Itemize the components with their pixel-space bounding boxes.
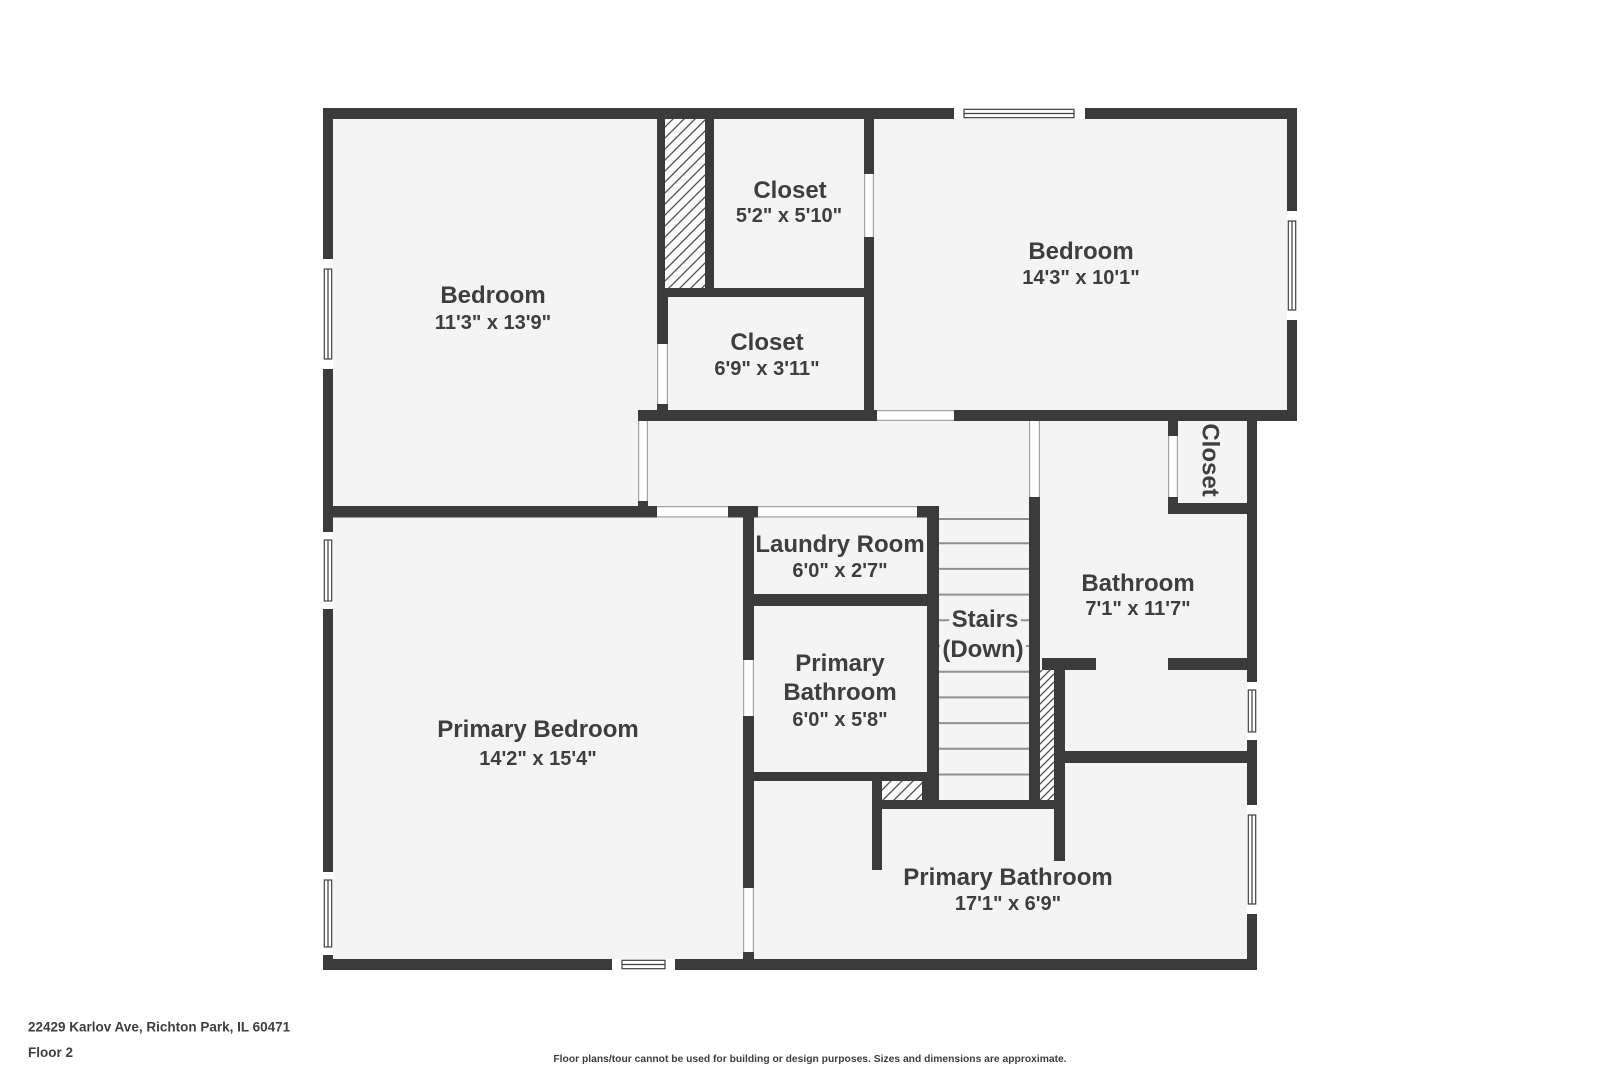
svg-text:6'0" x 2'7": 6'0" x 2'7" [792, 560, 887, 582]
svg-text:(Down): (Down) [942, 636, 1023, 663]
svg-text:Primary: Primary [795, 650, 885, 677]
svg-text:5'2" x 5'10": 5'2" x 5'10" [736, 205, 842, 227]
svg-text:Bathroom: Bathroom [783, 679, 896, 706]
svg-text:Floor plans/tour cannot be use: Floor plans/tour cannot be used for buil… [553, 1054, 1066, 1065]
svg-text:17'1" x 6'9": 17'1" x 6'9" [955, 893, 1061, 915]
svg-text:Closet: Closet [730, 329, 803, 356]
svg-text:14'3" x 10'1": 14'3" x 10'1" [1022, 267, 1139, 289]
svg-text:Closet: Closet [1197, 423, 1224, 496]
svg-text:6'0" x 5'8": 6'0" x 5'8" [792, 709, 887, 731]
svg-text:7'1" x 11'7": 7'1" x 11'7" [1085, 598, 1190, 620]
svg-text:Primary Bathroom: Primary Bathroom [903, 864, 1112, 891]
svg-text:14'2" x 15'4": 14'2" x 15'4" [479, 748, 596, 770]
svg-text:Bathroom: Bathroom [1081, 570, 1194, 597]
svg-text:Stairs: Stairs [952, 606, 1019, 633]
svg-text:Laundry Room: Laundry Room [755, 531, 924, 558]
svg-text:Bedroom: Bedroom [1028, 238, 1133, 265]
svg-text:Primary Bedroom: Primary Bedroom [437, 716, 638, 743]
svg-text:Bedroom: Bedroom [440, 282, 545, 309]
svg-text:Closet: Closet [753, 177, 826, 204]
svg-text:6'9" x 3'11": 6'9" x 3'11" [714, 358, 819, 380]
svg-text:Floor 2: Floor 2 [28, 1045, 73, 1060]
svg-text:22429 Karlov Ave, Richton Park: 22429 Karlov Ave, Richton Park, IL 60471 [28, 1020, 291, 1035]
svg-text:11'3" x 13'9": 11'3" x 13'9" [435, 312, 551, 334]
